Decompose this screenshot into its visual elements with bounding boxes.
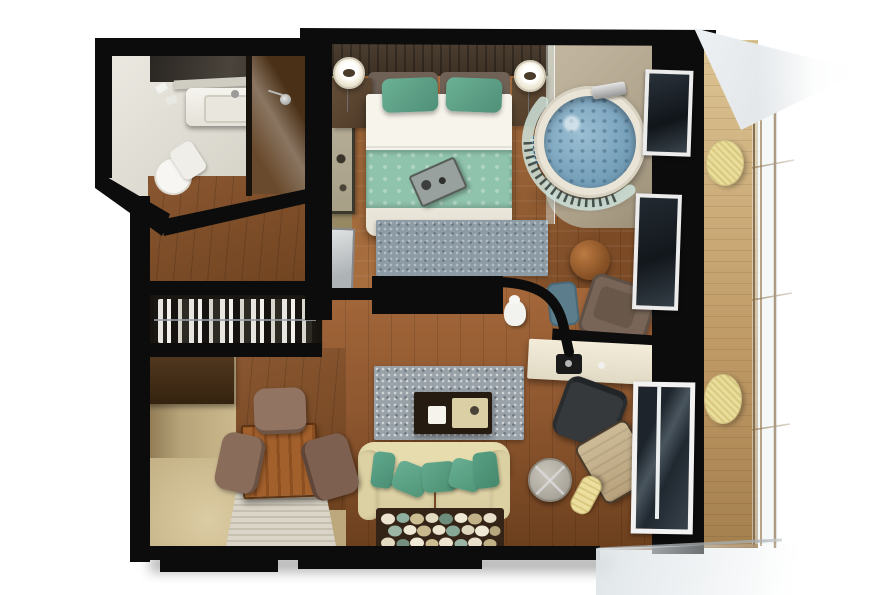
- right-white-fade: [756, 0, 892, 595]
- floor-plan-canvas: [0, 0, 892, 595]
